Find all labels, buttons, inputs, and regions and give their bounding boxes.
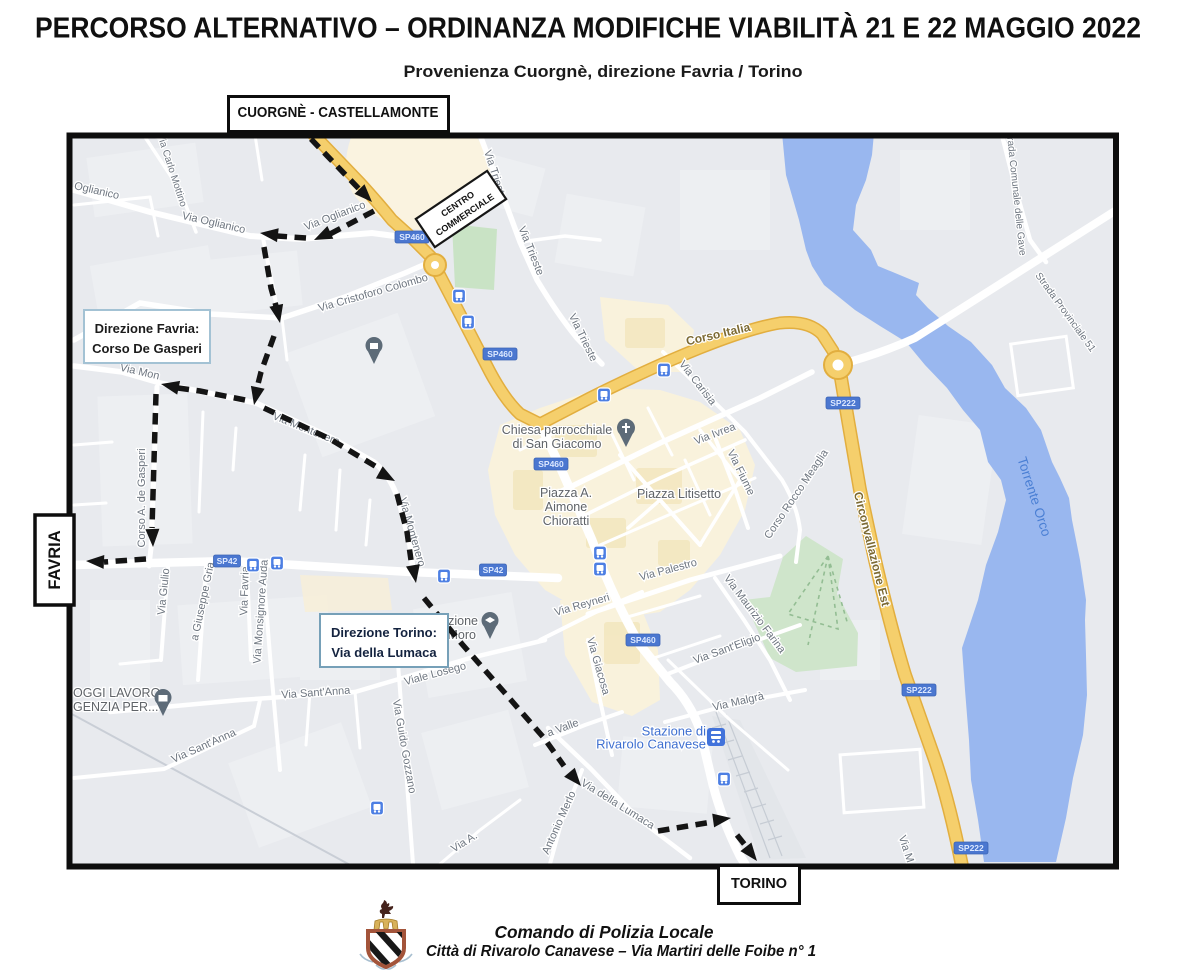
svg-text:Piazza A.: Piazza A. (540, 486, 592, 500)
svg-text:CUORGNÈ - CASTELLAMONTE: CUORGNÈ - CASTELLAMONTE (238, 104, 439, 121)
svg-text:GENZIA PER...: GENZIA PER... (73, 700, 158, 714)
svg-text:Rivarolo Canavese: Rivarolo Canavese (596, 737, 706, 752)
svg-text:Comando di Polizia Locale: Comando di Polizia Locale (495, 922, 714, 942)
svg-text:FAVRIA: FAVRIA (46, 530, 64, 589)
svg-text:TORINO: TORINO (731, 876, 787, 892)
svg-text:SP460: SP460 (630, 635, 656, 645)
svg-text:di San Giacomo: di San Giacomo (513, 437, 602, 451)
svg-text:PERCORSO ALTERNATIVO – ORDINAN: PERCORSO ALTERNATIVO – ORDINANZA MODIFIC… (35, 13, 1141, 45)
svg-text:Corso A. de Gasperi: Corso A. de Gasperi (136, 448, 148, 547)
svg-text:SP222: SP222 (830, 398, 856, 408)
svg-text:SP460: SP460 (487, 349, 513, 359)
svg-text:zione: zione (448, 614, 478, 628)
svg-text:SP460: SP460 (538, 459, 564, 469)
svg-text:Direzione Torino:: Direzione Torino: (331, 625, 437, 640)
svg-text:Città di Rivarolo Canavese – V: Città di Rivarolo Canavese – Via Martiri… (426, 943, 816, 960)
svg-text:Chiesa parrocchiale: Chiesa parrocchiale (502, 423, 613, 437)
svg-text:SP42: SP42 (483, 565, 504, 575)
svg-text:SP460: SP460 (399, 232, 425, 242)
svg-text:OGGI LAVORO: OGGI LAVORO (73, 686, 161, 700)
svg-text:Via della Lumaca: Via della Lumaca (331, 645, 437, 660)
svg-text:Piazza Litisetto: Piazza Litisetto (637, 487, 721, 501)
svg-text:Provenienza Cuorgnè, direzione: Provenienza Cuorgnè, direzione Favria / … (404, 62, 803, 81)
svg-text:SP222: SP222 (958, 843, 984, 853)
svg-text:SP42: SP42 (217, 556, 238, 566)
svg-text:Direzione Favria:: Direzione Favria: (95, 321, 200, 336)
svg-text:SP222: SP222 (906, 685, 932, 695)
svg-text:Corso De Gasperi: Corso De Gasperi (92, 341, 202, 356)
svg-text:Aimone: Aimone (545, 500, 587, 514)
svg-text:Chioratti: Chioratti (543, 514, 590, 528)
svg-text:Via Favria: Via Favria (238, 565, 252, 616)
